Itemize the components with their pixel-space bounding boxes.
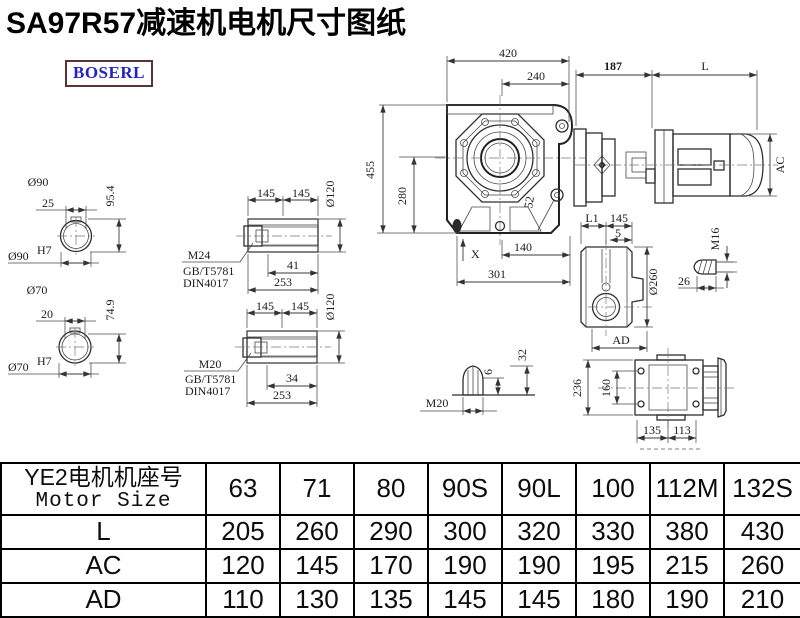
table-cell: 190	[650, 583, 724, 617]
screw-label: M24	[188, 248, 211, 262]
header-line-en: Motor Size	[2, 490, 205, 513]
dim-label: L	[701, 59, 708, 73]
gearbox-side-view: L1 145 5 Ø260 AD	[581, 211, 660, 352]
dim-label: 145	[291, 299, 309, 313]
table-cell: 380	[650, 515, 724, 549]
table-cell: 170	[354, 549, 428, 583]
table-cell: 260	[724, 549, 800, 583]
table-cell: 120	[206, 549, 280, 583]
table-cell: 130	[280, 583, 354, 617]
column-header: 90S	[428, 463, 502, 515]
dim-label: 187	[604, 59, 622, 73]
dim-label: 74.9	[103, 300, 117, 321]
dim-label: 253	[273, 388, 291, 402]
table-cell: 320	[502, 515, 576, 549]
dim-label: Ø120	[323, 181, 337, 208]
dim-label: M20	[426, 396, 449, 410]
dim-label: Ø90	[28, 175, 49, 189]
dim-label: X	[471, 247, 480, 261]
column-header: 63	[206, 463, 280, 515]
dim-label: 140	[514, 240, 532, 254]
motor-side-view: 187 L AC	[574, 59, 787, 206]
table-cell: 290	[354, 515, 428, 549]
dim-label: 145	[610, 211, 628, 225]
dim-label: 253	[274, 275, 292, 289]
table-row-AC: AC 120 145 170 190 190 195 215 260	[1, 549, 800, 583]
table-cell: 195	[576, 549, 650, 583]
column-header: 112M	[650, 463, 724, 515]
dim-label: L1	[585, 211, 598, 225]
dim-label: 32	[515, 349, 529, 361]
shaft-70-end-view: Ø70 20 74.9 Ø70 H7	[8, 283, 126, 378]
dim-label: 240	[527, 69, 545, 83]
dim-label: 145	[256, 299, 274, 313]
dim-label: 160	[599, 379, 613, 397]
dim-label: 113	[673, 423, 691, 437]
dim-label: 52	[521, 195, 537, 209]
dim-label: AD	[612, 333, 630, 347]
dim-label: Ø70	[8, 360, 29, 374]
motor-size-table: YE2电机机座号 Motor Size 63 71 80 90S 90L 100…	[0, 462, 800, 618]
column-header: 132S	[724, 463, 800, 515]
hollow-shaft-section-b: 145 145 Ø120 34 253 M20 GB/T5781 DIN4017	[184, 294, 345, 407]
table-cell: 190	[428, 549, 502, 583]
dim-label: Ø70	[27, 283, 48, 297]
technical-drawing: Ø90 25 95.4 Ø90 H7 Ø70 20 74.9	[0, 0, 800, 462]
table-cell: 145	[280, 549, 354, 583]
dim-label: M16	[708, 228, 722, 251]
table-cell: 430	[724, 515, 800, 549]
dim-label: Ø120	[323, 294, 337, 321]
dim-label: 5	[615, 226, 621, 240]
dim-label: 236	[570, 379, 584, 397]
screw-label: M20	[199, 357, 222, 371]
dim-label: 26	[678, 274, 690, 288]
hollow-shaft-section-a: 145 145 Ø120 41 253 M24 GB/T5781 DIN4017	[182, 181, 346, 294]
table-cell: 215	[650, 549, 724, 583]
dim-label: 145	[292, 186, 310, 200]
table-cell: 145	[428, 583, 502, 617]
dim-label: 95.4	[103, 186, 117, 207]
dim-label: 34	[286, 371, 298, 385]
gearbox-top-view: 160 236 135 113	[570, 348, 736, 449]
row-label: AC	[1, 549, 206, 583]
dim-label: 280	[395, 187, 409, 205]
gearbox-front-view: 52 420 240 455 280 X 140 301	[363, 46, 585, 286]
table-cell: 110	[206, 583, 280, 617]
table-cell: 300	[428, 515, 502, 549]
header-line-cn: YE2电机机座号	[2, 464, 205, 490]
dim-label: 25	[42, 196, 54, 210]
standard-label: DIN4017	[185, 384, 230, 398]
dim-label: AC	[773, 157, 787, 174]
dim-label: 20	[41, 307, 53, 321]
table-cell: 330	[576, 515, 650, 549]
table-row-AD: AD 110 130 135 145 145 180 190 210	[1, 583, 800, 617]
dim-label: 41	[287, 258, 299, 272]
column-header: 80	[354, 463, 428, 515]
row-label: L	[1, 515, 206, 549]
table-header-motor-size: YE2电机机座号 Motor Size	[1, 463, 206, 515]
dim-label: 145	[257, 186, 275, 200]
table-cell: 145	[502, 583, 576, 617]
dim-label: 420	[499, 46, 517, 60]
table-cell: 190	[502, 549, 576, 583]
shaft-90-end-view: Ø90 25 95.4 Ø90 H7	[8, 175, 126, 267]
table-cell: 210	[724, 583, 800, 617]
column-header: 90L	[502, 463, 576, 515]
standard-label: DIN4017	[183, 276, 228, 290]
table-cell: 205	[206, 515, 280, 549]
bolt-m16-detail: M16 26	[678, 228, 737, 292]
table-cell: 180	[576, 583, 650, 617]
row-label: AD	[1, 583, 206, 617]
dim-label: 301	[488, 267, 506, 281]
table-cell: 135	[354, 583, 428, 617]
dim-label: Ø90	[8, 249, 29, 263]
column-header: 71	[280, 463, 354, 515]
dim-label: 135	[643, 423, 661, 437]
table-row-L: L 205 260 290 300 320 330 380 430	[1, 515, 800, 549]
dim-label: 455	[363, 161, 377, 179]
dim-label: Ø260	[646, 269, 660, 296]
dim-label-sup: H7	[37, 243, 52, 257]
table-cell: 260	[280, 515, 354, 549]
table-header-row: YE2电机机座号 Motor Size 63 71 80 90S 90L 100…	[1, 463, 800, 515]
column-header: 100	[576, 463, 650, 515]
dim-label-sup: H7	[37, 354, 52, 368]
dim-label: 6	[481, 369, 495, 375]
plug-m20-detail: M20 6 32	[420, 349, 535, 415]
